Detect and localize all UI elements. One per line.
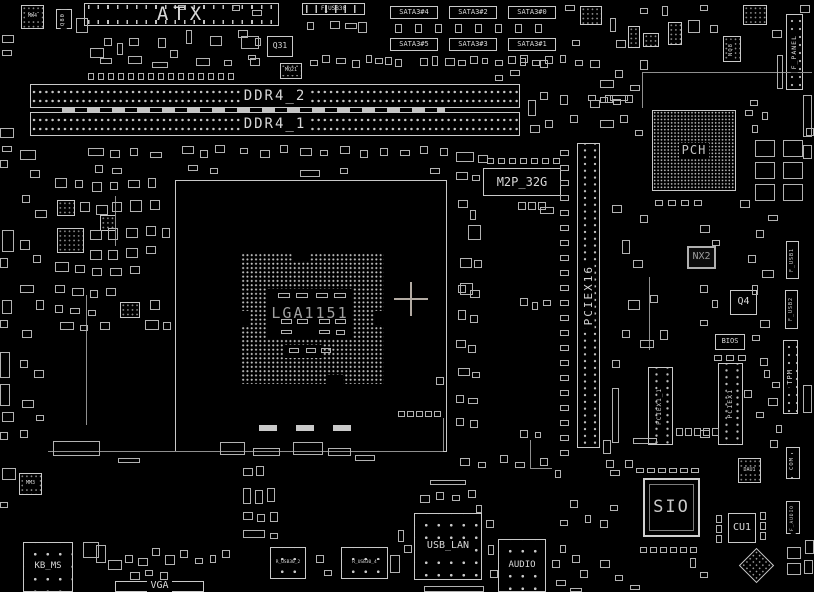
pad bbox=[640, 547, 647, 553]
part bbox=[681, 200, 689, 206]
pad bbox=[542, 158, 549, 164]
part bbox=[700, 285, 708, 293]
part bbox=[575, 60, 583, 66]
socket-pad bbox=[278, 293, 290, 298]
pad bbox=[416, 411, 423, 417]
part bbox=[760, 358, 768, 366]
part bbox=[478, 462, 486, 468]
part bbox=[195, 558, 203, 564]
sata3-2-connector-label: SATA3#2 bbox=[457, 9, 489, 16]
ddr4-2-slot[interactable]: DDR4_2 bbox=[30, 84, 520, 108]
part bbox=[760, 320, 770, 328]
m2-connector[interactable]: M2P_32G bbox=[483, 168, 561, 196]
part bbox=[615, 575, 623, 581]
part bbox=[700, 572, 708, 578]
pad bbox=[434, 411, 441, 417]
q31-chip[interactable]: Q31 bbox=[267, 36, 293, 57]
part bbox=[804, 560, 813, 574]
part bbox=[307, 22, 314, 30]
socket-notch bbox=[293, 253, 309, 262]
pad bbox=[647, 468, 655, 473]
part bbox=[472, 372, 480, 378]
pad bbox=[518, 202, 526, 210]
f-usb2-connector[interactable]: F_USB2 bbox=[785, 290, 798, 329]
socket-pad bbox=[334, 293, 346, 298]
f-audio-connector[interactable]: F_AUDIO bbox=[786, 501, 800, 534]
part bbox=[186, 30, 192, 44]
pad bbox=[560, 270, 569, 276]
part bbox=[200, 150, 208, 158]
part bbox=[243, 468, 253, 476]
crosshair bbox=[394, 282, 428, 316]
m2-connector-label: M2P_32G bbox=[494, 175, 551, 190]
part bbox=[610, 470, 620, 476]
trace-line bbox=[642, 72, 812, 73]
part bbox=[180, 550, 188, 558]
audio-jack-connector[interactable]: AUDIO bbox=[498, 539, 546, 592]
pad bbox=[658, 468, 666, 473]
part bbox=[622, 330, 630, 338]
part bbox=[300, 148, 312, 156]
part bbox=[738, 355, 746, 361]
part bbox=[355, 455, 375, 461]
bios-chip-label: BIOS bbox=[719, 337, 742, 346]
part bbox=[395, 59, 402, 67]
part bbox=[540, 207, 554, 214]
part bbox=[300, 170, 320, 177]
part bbox=[160, 572, 168, 580]
part bbox=[660, 330, 668, 340]
part bbox=[752, 335, 760, 341]
part bbox=[630, 585, 640, 590]
pad bbox=[685, 428, 692, 436]
pad bbox=[755, 162, 775, 179]
part bbox=[560, 95, 568, 105]
pad bbox=[560, 375, 569, 381]
part bbox=[75, 180, 83, 188]
part bbox=[22, 330, 32, 338]
part bbox=[345, 23, 357, 29]
part bbox=[130, 266, 140, 274]
part bbox=[603, 440, 611, 454]
sata3-0-connector[interactable]: SATA3#0 bbox=[508, 6, 556, 19]
part bbox=[80, 325, 88, 331]
pad bbox=[560, 255, 569, 261]
part bbox=[100, 322, 110, 330]
part bbox=[700, 225, 710, 233]
pciex16-slot-label: PCIEX16 bbox=[583, 262, 595, 328]
part bbox=[456, 152, 474, 162]
pad bbox=[487, 158, 494, 164]
part bbox=[53, 441, 100, 456]
pad bbox=[228, 73, 234, 80]
cu1-chip[interactable]: CU1 bbox=[728, 513, 756, 543]
pad bbox=[178, 73, 184, 80]
pad bbox=[560, 390, 569, 396]
part bbox=[530, 125, 540, 133]
part bbox=[762, 270, 774, 278]
part bbox=[130, 200, 142, 212]
mw4-chip-label: MW4 bbox=[25, 13, 40, 20]
pad bbox=[755, 184, 775, 201]
capacitor bbox=[259, 425, 277, 431]
part bbox=[95, 165, 103, 173]
pad bbox=[415, 24, 422, 33]
trace-line bbox=[48, 451, 443, 452]
part bbox=[528, 100, 536, 116]
part bbox=[805, 540, 814, 554]
part bbox=[106, 288, 116, 296]
f-usb1-connector[interactable]: F_USB1 bbox=[786, 241, 799, 279]
cpu-socket-lga1151-label: LGA1151 bbox=[268, 305, 351, 323]
part bbox=[700, 5, 708, 11]
part bbox=[545, 120, 553, 128]
pad bbox=[560, 435, 569, 441]
part bbox=[22, 400, 34, 408]
trace-line bbox=[530, 440, 531, 468]
part bbox=[224, 60, 232, 66]
bios-chip[interactable]: BIOS bbox=[715, 334, 745, 350]
part bbox=[110, 182, 118, 190]
pad bbox=[669, 468, 677, 473]
part bbox=[243, 512, 253, 520]
part bbox=[432, 56, 438, 66]
usb-lan-connector[interactable]: USB_LAN bbox=[414, 513, 482, 580]
part bbox=[803, 385, 812, 413]
part bbox=[490, 570, 498, 578]
kb-ms-connector-label: KB_MS bbox=[31, 561, 64, 572]
part bbox=[316, 555, 324, 563]
part bbox=[590, 60, 600, 68]
part bbox=[787, 563, 801, 575]
ddr4-1-slot[interactable]: DDR4_1 bbox=[30, 112, 520, 136]
part bbox=[110, 150, 120, 158]
f-panel-connector[interactable]: F_PANEL bbox=[786, 14, 803, 90]
part bbox=[196, 58, 210, 66]
pad bbox=[560, 285, 569, 291]
r-usb30-2-connector[interactable]: R_USB30_2 bbox=[270, 547, 306, 579]
part bbox=[55, 178, 67, 188]
part bbox=[158, 38, 166, 48]
pad bbox=[407, 411, 414, 417]
pad bbox=[691, 468, 699, 473]
part bbox=[152, 62, 168, 68]
part bbox=[145, 320, 159, 330]
vga-connector[interactable]: VGA bbox=[115, 581, 204, 592]
part bbox=[740, 200, 750, 208]
sata3-5-connector[interactable]: SATA3#5 bbox=[390, 38, 438, 51]
part bbox=[606, 460, 614, 468]
sata3-2-connector[interactable]: SATA3#2 bbox=[449, 6, 497, 19]
part bbox=[476, 505, 482, 513]
r-usb30-2-connector-label: R_USB30_2 bbox=[273, 560, 303, 567]
f-audio-connector-label: F_AUDIO bbox=[791, 502, 796, 534]
q80-chip[interactable]: Q80 bbox=[56, 9, 72, 29]
part bbox=[117, 43, 123, 55]
q80-chip-label: Q80 bbox=[61, 10, 67, 29]
pciex1-slot[interactable]: PCIEX1 bbox=[718, 363, 743, 445]
part bbox=[770, 440, 778, 448]
component bbox=[743, 5, 767, 25]
pad bbox=[660, 547, 667, 553]
pad bbox=[395, 24, 402, 33]
part bbox=[756, 412, 764, 418]
nq8-chip-label: NQ8 bbox=[729, 40, 735, 59]
pad bbox=[755, 140, 775, 157]
part bbox=[495, 75, 503, 81]
part bbox=[280, 145, 288, 153]
part bbox=[2, 412, 14, 422]
sata3-0-connector-label: SATA3#0 bbox=[516, 9, 548, 16]
dau1-chip[interactable]: DAU1 bbox=[738, 458, 761, 483]
part bbox=[55, 305, 63, 313]
part bbox=[253, 448, 280, 456]
part bbox=[726, 355, 734, 361]
part bbox=[270, 512, 278, 522]
pad bbox=[716, 515, 722, 523]
mm3-chip-label: MM3 bbox=[23, 480, 38, 487]
pciex1-1-slot[interactable]: PCIEX1_1 bbox=[648, 367, 673, 445]
part bbox=[633, 260, 643, 268]
part bbox=[620, 115, 628, 123]
part bbox=[472, 175, 480, 181]
part bbox=[460, 458, 470, 466]
pad bbox=[716, 525, 722, 533]
part bbox=[540, 92, 548, 100]
part bbox=[210, 555, 216, 563]
part bbox=[470, 56, 478, 64]
part bbox=[772, 382, 780, 388]
part bbox=[36, 415, 44, 421]
part bbox=[570, 588, 582, 592]
part bbox=[610, 505, 618, 511]
part bbox=[752, 125, 758, 133]
pad bbox=[560, 405, 569, 411]
pad bbox=[515, 24, 522, 33]
usb-lan-connector-label: USB_LAN bbox=[424, 540, 472, 553]
part bbox=[668, 200, 676, 206]
part bbox=[232, 5, 240, 11]
mq21-chip[interactable]: MQ21 bbox=[280, 63, 302, 79]
part bbox=[108, 560, 122, 570]
part bbox=[328, 448, 351, 456]
sata3-1-connector[interactable]: SATA3#1 bbox=[508, 38, 556, 51]
part bbox=[0, 502, 8, 508]
q4-chip-label: Q4 bbox=[734, 296, 752, 309]
pad bbox=[676, 428, 683, 436]
part bbox=[310, 60, 318, 66]
part bbox=[570, 500, 578, 508]
part bbox=[458, 200, 468, 208]
pad bbox=[680, 547, 687, 553]
pad bbox=[760, 532, 766, 540]
pad bbox=[88, 73, 94, 80]
part bbox=[252, 10, 262, 16]
sata3-4-connector[interactable]: SATA3#4 bbox=[390, 6, 438, 19]
pad bbox=[425, 411, 432, 417]
part bbox=[612, 360, 620, 368]
sata3-3-connector-label: SATA3#3 bbox=[457, 41, 489, 48]
vga-connector-label: VGA bbox=[147, 580, 171, 592]
part bbox=[2, 230, 14, 252]
part bbox=[0, 258, 8, 268]
part bbox=[257, 514, 265, 522]
part bbox=[560, 520, 568, 526]
pad bbox=[531, 158, 538, 164]
audio-codec-chip[interactable] bbox=[739, 548, 774, 583]
trace-line bbox=[530, 468, 552, 469]
pad bbox=[670, 547, 677, 553]
part bbox=[2, 468, 16, 480]
sio-chip[interactable]: SIO bbox=[643, 478, 700, 537]
nx2-chip[interactable]: NX2 bbox=[687, 246, 716, 269]
atx-power-connector[interactable]: ATX bbox=[84, 3, 279, 26]
pciex16-slot[interactable]: PCIEX16 bbox=[577, 143, 600, 448]
part bbox=[625, 460, 633, 468]
tpm-connector-label: TPM bbox=[787, 366, 794, 388]
part bbox=[0, 432, 8, 440]
part bbox=[748, 255, 756, 263]
part bbox=[375, 58, 383, 64]
part bbox=[92, 268, 102, 276]
part bbox=[150, 200, 160, 210]
part bbox=[640, 60, 648, 70]
part bbox=[452, 495, 460, 501]
cu1-chip-label: CU1 bbox=[730, 522, 754, 535]
kb-ms-connector[interactable]: KB_MS bbox=[23, 542, 73, 592]
part bbox=[650, 295, 658, 303]
part bbox=[532, 60, 540, 66]
part bbox=[520, 298, 528, 306]
part bbox=[468, 225, 481, 240]
com-connector[interactable]: COM bbox=[786, 447, 800, 479]
part bbox=[745, 110, 753, 116]
nq8-chip[interactable]: NQ8 bbox=[723, 36, 741, 62]
part bbox=[358, 22, 367, 33]
part bbox=[22, 195, 30, 203]
part bbox=[90, 230, 102, 240]
part bbox=[600, 560, 610, 568]
part bbox=[150, 152, 162, 158]
trace-line bbox=[86, 295, 87, 425]
part bbox=[458, 310, 466, 320]
part bbox=[612, 388, 619, 443]
pad bbox=[498, 158, 505, 164]
part bbox=[700, 430, 710, 438]
part bbox=[468, 345, 476, 353]
sata3-3-connector[interactable]: SATA3#3 bbox=[449, 38, 497, 51]
part bbox=[90, 48, 104, 58]
pad bbox=[712, 428, 719, 436]
mw4-chip[interactable]: MW4 bbox=[21, 5, 44, 29]
f-usb30-connector[interactable]: F_USB30 bbox=[302, 3, 365, 15]
part bbox=[420, 495, 430, 503]
component bbox=[57, 228, 84, 253]
part bbox=[330, 21, 340, 29]
part bbox=[138, 558, 148, 566]
board-canvas[interactable]: ATXF_USB30SATA3#4SATA3#2SATA3#0SATA3#5SA… bbox=[0, 0, 814, 592]
pad bbox=[783, 184, 803, 201]
part bbox=[424, 586, 484, 592]
part bbox=[662, 6, 668, 16]
part bbox=[468, 398, 478, 404]
part bbox=[510, 70, 520, 76]
part bbox=[248, 55, 256, 60]
part bbox=[112, 202, 122, 212]
part bbox=[2, 35, 14, 43]
part bbox=[70, 308, 80, 314]
sata3-5-connector-label: SATA3#5 bbox=[398, 41, 430, 48]
pad bbox=[560, 420, 569, 426]
part bbox=[710, 25, 718, 33]
part bbox=[616, 40, 626, 48]
pad bbox=[475, 24, 482, 33]
pad bbox=[560, 315, 569, 321]
part bbox=[630, 85, 640, 91]
pch-chip[interactable]: PCH bbox=[652, 110, 736, 191]
part bbox=[322, 55, 330, 63]
part bbox=[585, 515, 591, 523]
tpm-connector[interactable]: TPM bbox=[783, 340, 798, 414]
part bbox=[83, 542, 99, 558]
part bbox=[76, 18, 88, 33]
part bbox=[260, 150, 270, 158]
component bbox=[628, 26, 640, 48]
part bbox=[220, 442, 245, 455]
part bbox=[436, 492, 444, 500]
pciex1-slot-label: PCIEX1 bbox=[727, 386, 734, 421]
part bbox=[145, 570, 153, 576]
r-usb30-4-connector[interactable]: R_USB30_4 bbox=[341, 547, 388, 579]
pad bbox=[783, 162, 803, 179]
part bbox=[470, 210, 476, 220]
part bbox=[20, 360, 28, 368]
part bbox=[772, 30, 782, 38]
part bbox=[756, 230, 764, 238]
part bbox=[635, 130, 643, 136]
part bbox=[2, 300, 12, 314]
part bbox=[108, 228, 118, 240]
mm3-chip[interactable]: MM3 bbox=[19, 473, 42, 495]
part bbox=[90, 290, 98, 298]
part bbox=[108, 250, 118, 260]
pad bbox=[560, 180, 569, 186]
q31-chip-label: Q31 bbox=[270, 41, 290, 51]
part bbox=[456, 418, 464, 426]
part bbox=[162, 228, 170, 238]
part bbox=[640, 340, 654, 348]
part bbox=[129, 38, 139, 46]
part bbox=[488, 545, 494, 555]
part bbox=[243, 488, 251, 504]
part bbox=[55, 285, 65, 293]
part bbox=[20, 150, 36, 160]
part bbox=[0, 128, 14, 138]
pad bbox=[118, 73, 124, 80]
part bbox=[222, 550, 230, 558]
part bbox=[420, 58, 428, 66]
part bbox=[430, 480, 466, 485]
f-usb1-connector-label: F_USB1 bbox=[790, 245, 795, 275]
part bbox=[625, 95, 633, 103]
part bbox=[613, 99, 621, 105]
f-usb2-connector-label: F_USB2 bbox=[789, 294, 794, 324]
part bbox=[88, 148, 104, 156]
part bbox=[508, 56, 516, 64]
part bbox=[456, 340, 466, 348]
part bbox=[478, 155, 488, 163]
r-usb30-4-connector-label: R_USB30_4 bbox=[349, 560, 379, 567]
